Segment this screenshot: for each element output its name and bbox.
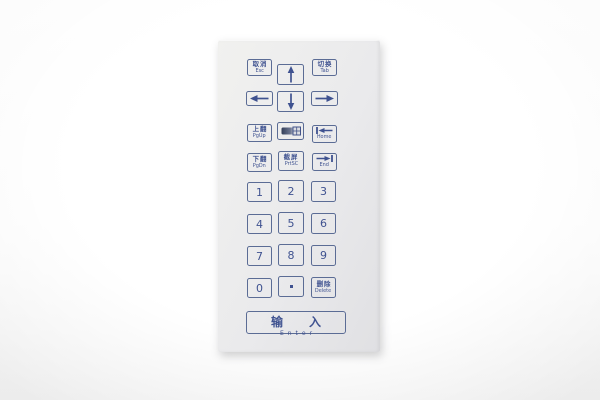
print-screen-key-zh-label: 截屏 xyxy=(284,155,299,161)
down-arrow-key[interactable] xyxy=(277,91,304,112)
digit-4-label: 4 xyxy=(256,219,263,230)
digit-8-label: 8 xyxy=(288,250,295,261)
left-arrow-key[interactable] xyxy=(246,91,273,106)
digit-9-key[interactable]: 9 xyxy=(311,245,336,266)
page-down-key-zh-label: 下翻 xyxy=(252,156,267,162)
bar-left-arrow-icon xyxy=(316,127,333,134)
delete-key[interactable]: 删除 Delete xyxy=(311,277,336,298)
digit-5-label: 5 xyxy=(288,218,295,229)
digit-4-key[interactable]: 4 xyxy=(247,214,272,234)
enter-key[interactable]: 输入 Enter xyxy=(246,311,346,334)
digit-2-label: 2 xyxy=(288,186,295,197)
decimal-point-key[interactable] xyxy=(278,276,304,297)
digit-8-key[interactable]: 8 xyxy=(278,244,304,266)
digit-5-key[interactable]: 5 xyxy=(278,212,304,234)
digit-2-key[interactable]: 2 xyxy=(278,180,304,202)
page-up-key-en-label: PgUp xyxy=(253,135,266,140)
right-arrow-bar-icon xyxy=(316,155,333,162)
delete-key-en-label: Delete xyxy=(315,289,331,294)
delete-key-zh-label: 删除 xyxy=(316,281,331,287)
down-arrow-icon xyxy=(286,93,296,110)
right-arrow-icon xyxy=(315,94,334,103)
digit-6-key[interactable]: 6 xyxy=(311,213,336,234)
digit-0-label: 0 xyxy=(256,283,263,294)
digit-9-label: 9 xyxy=(320,250,327,261)
esc-key[interactable]: 取消 Esc xyxy=(247,59,272,76)
digit-0-key[interactable]: 0 xyxy=(247,278,272,298)
digit-6-label: 6 xyxy=(320,218,327,229)
digit-7-label: 7 xyxy=(256,251,263,262)
square-dot-icon xyxy=(290,285,293,288)
tab-key-zh-label: 切换 xyxy=(317,61,332,67)
photo-backdrop: 取消 Esc 切换 Tab xyxy=(0,0,600,400)
keypad-panel: 取消 Esc 切换 Tab xyxy=(218,40,380,352)
page-down-key-en-label: PgDn xyxy=(253,164,266,169)
print-screen-key[interactable]: 截屏 PrtSC xyxy=(278,151,304,171)
digit-7-key[interactable]: 7 xyxy=(247,246,272,266)
up-arrow-key[interactable] xyxy=(277,64,304,85)
left-arrow-icon xyxy=(250,94,269,103)
home-key-label: Home xyxy=(317,136,332,141)
backlight-key[interactable] xyxy=(277,122,304,140)
page-down-key[interactable]: 下翻 PgDn xyxy=(247,153,272,172)
enter-key-en-label: Enter xyxy=(247,331,349,337)
home-key[interactable]: Home xyxy=(312,125,337,143)
tab-key[interactable]: 切换 Tab xyxy=(312,59,337,76)
digit-1-key[interactable]: 1 xyxy=(247,182,272,202)
digit-3-label: 3 xyxy=(320,186,327,197)
esc-key-zh-label: 取消 xyxy=(252,61,267,67)
end-key[interactable]: End xyxy=(312,153,337,171)
page-up-key[interactable]: 上翻 PgUp xyxy=(247,124,272,142)
esc-key-en-label: Esc xyxy=(255,69,263,74)
digit-1-label: 1 xyxy=(256,187,263,198)
print-screen-key-en-label: PrtSC xyxy=(284,163,297,168)
digit-3-key[interactable]: 3 xyxy=(311,181,336,202)
up-arrow-icon xyxy=(286,66,296,83)
tab-key-en-label: Tab xyxy=(320,69,328,74)
right-arrow-key[interactable] xyxy=(311,91,338,106)
enter-key-zh-label: 输入 xyxy=(271,316,347,328)
backlight-grid-icon xyxy=(281,126,301,136)
page-up-key-zh-label: 上翻 xyxy=(252,127,267,133)
end-key-label: End xyxy=(320,164,329,169)
